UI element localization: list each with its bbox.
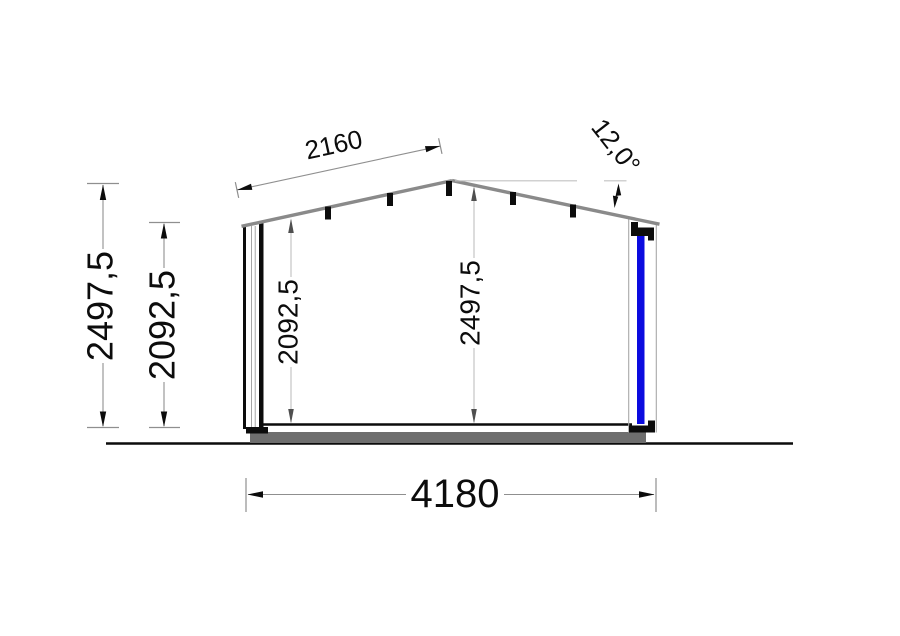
- dimension-slope-length: 2160: [229, 108, 442, 198]
- elevation-drawing: 2497,5 2092,5 2092,5 2497,5 2160: [0, 0, 900, 636]
- roof-purlin: [570, 205, 576, 218]
- dimension-overall-width: 4180: [246, 472, 656, 516]
- dimension-interior-ridge-height: 2497,5: [455, 187, 486, 424]
- roof-angle-label: 12,0°: [585, 113, 646, 180]
- left-wall-outer-layer: [243, 227, 246, 429]
- interior-ridge-height-label: 2497,5: [455, 260, 486, 346]
- left-wall-section: [243, 223, 268, 434]
- roof-purlin: [325, 207, 331, 220]
- outer-height-label: 2497,5: [80, 251, 121, 361]
- right-glazed-wall-section: [629, 219, 657, 433]
- interior-wall-height-label: 2092,5: [273, 279, 304, 365]
- left-wall-inner-layer: [259, 223, 264, 430]
- roof-purlin: [446, 181, 452, 196]
- drawing-svg: 2497,5 2092,5 2092,5 2497,5 2160: [0, 0, 900, 636]
- dimension-interior-wall-height: 2092,5: [273, 219, 304, 424]
- roof-purlin: [510, 192, 516, 205]
- dimension-outer-height: 2497,5: [80, 184, 121, 428]
- dimension-roof-angle: 12,0°: [455, 113, 647, 208]
- roof-left-slope: [242, 181, 453, 227]
- left-wall-sill: [246, 427, 268, 434]
- roof-section: [242, 181, 660, 227]
- wall-height-label: 2092,5: [142, 270, 183, 380]
- roof-right-slope: [452, 181, 660, 225]
- glazing-panel: [637, 235, 645, 424]
- slope-length-label: 2160: [302, 124, 365, 166]
- foundation-slab: [250, 432, 646, 443]
- roof-purlin: [387, 193, 393, 206]
- dimension-wall-height: 2092,5: [142, 223, 183, 428]
- overall-width-label: 4180: [411, 472, 500, 516]
